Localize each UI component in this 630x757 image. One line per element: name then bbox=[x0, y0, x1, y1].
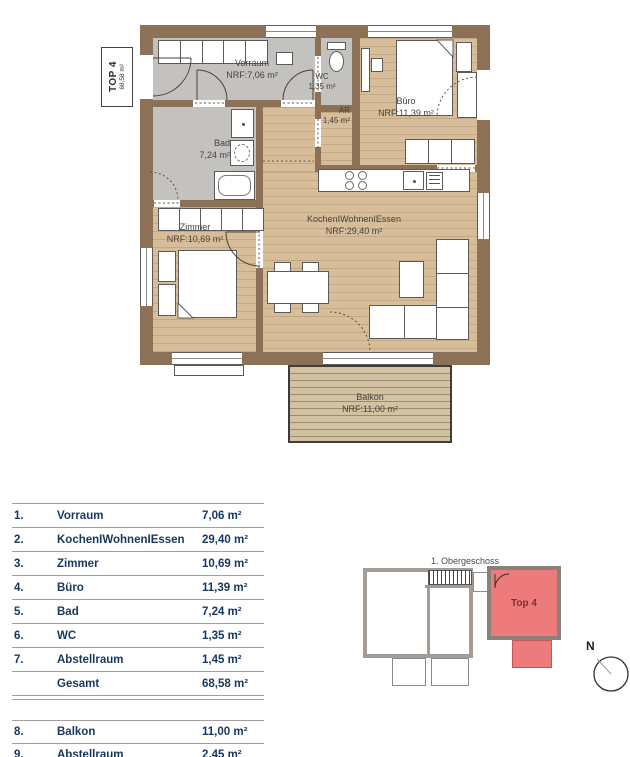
window-vorraum bbox=[266, 25, 316, 38]
overview-title: 1. Obergeschoss bbox=[385, 556, 545, 566]
row-label: Abstellraum bbox=[54, 749, 202, 757]
row-value: 11,39 m² bbox=[202, 582, 264, 594]
bed-zimmer bbox=[178, 250, 237, 318]
row-number: 2. bbox=[12, 534, 54, 546]
wall-bad-right bbox=[256, 100, 263, 207]
kitchen-sink-icon bbox=[403, 171, 424, 190]
window-zimmer-left bbox=[140, 248, 153, 306]
sofa-vertical bbox=[436, 239, 469, 340]
unit-top4-fill: Top 4 bbox=[491, 570, 557, 636]
toilet-icon bbox=[329, 51, 344, 72]
room-label-wc: WC1,35 m² bbox=[298, 72, 346, 93]
unit-name: TOP 4 bbox=[108, 61, 119, 92]
row-value: 11,00 m² bbox=[202, 726, 264, 738]
bad-zimmer-opening bbox=[154, 200, 180, 207]
row-number: 9. bbox=[12, 749, 54, 757]
row-label: Zimmer bbox=[54, 558, 202, 570]
dining-table bbox=[267, 271, 329, 304]
unit-top4-label: Top 4 bbox=[511, 598, 537, 609]
window-buero bbox=[368, 25, 452, 38]
buero-door-leaf bbox=[457, 72, 477, 118]
table-row: 2. KochenIWohnenIEssen 29,40 m² bbox=[12, 528, 264, 552]
ov-wall bbox=[427, 588, 430, 654]
desk bbox=[361, 48, 370, 92]
row-label: WC bbox=[54, 630, 202, 642]
drainer-icon bbox=[426, 172, 443, 190]
main-floorplan: TOP 4 68,58 m² bbox=[0, 0, 630, 470]
entrance-door-opening bbox=[140, 55, 153, 99]
table-row: 9. Abstellraum 2,45 m² bbox=[12, 744, 264, 757]
room-label-zimmer: ZimmerNRF:10,69 m² bbox=[156, 222, 234, 245]
row-number: 6. bbox=[12, 630, 54, 642]
table-row: 1. Vorraum 7,06 m² bbox=[12, 503, 264, 528]
row-label: Bad bbox=[54, 606, 202, 618]
window-sill bbox=[174, 365, 244, 376]
room-label-wohnen: KochenIWohnenIEssenNRF:29,40 m² bbox=[298, 214, 410, 237]
row-value: 1,35 m² bbox=[202, 630, 264, 642]
row-value: 7,24 m² bbox=[202, 606, 264, 618]
row-number: 3. bbox=[12, 558, 54, 570]
zimmer-door-opening bbox=[256, 230, 263, 268]
row-value: 1,45 m² bbox=[202, 654, 264, 666]
staircase bbox=[428, 570, 472, 585]
room-label-ar: AR1,45 m² bbox=[296, 106, 350, 127]
buero-french-door-opening bbox=[477, 70, 490, 120]
bad-door-opening bbox=[193, 100, 225, 107]
row-label: Büro bbox=[54, 582, 202, 594]
nightstand-buero bbox=[456, 42, 472, 72]
ov-balcony bbox=[392, 658, 426, 686]
row-number: 1. bbox=[12, 510, 54, 522]
table-row: 4. Büro 11,39 m² bbox=[12, 576, 264, 600]
bathtub bbox=[214, 171, 255, 200]
wardrobe-buero bbox=[405, 139, 475, 164]
row-value: 10,69 m² bbox=[202, 558, 264, 570]
table-row: 7. Abstellraum 1,45 m² bbox=[12, 648, 264, 672]
area-table: 1. Vorraum 7,06 m² 2. KochenIWohnenIEsse… bbox=[12, 503, 264, 757]
row-value: 68,58 m² bbox=[202, 678, 264, 690]
window-zimmer-bottom bbox=[172, 352, 242, 365]
balcony-sliding-door bbox=[323, 352, 433, 365]
row-number: 7. bbox=[12, 654, 54, 666]
row-value: 2,45 m² bbox=[202, 749, 264, 757]
balcony: BalkonNRF:11,00 m² bbox=[288, 365, 452, 443]
sofa-horizontal bbox=[369, 305, 437, 339]
room-label-buero: BüroNRF:11,39 m² bbox=[358, 96, 454, 119]
row-value: 29,40 m² bbox=[202, 534, 264, 546]
floorplan-sheet: TOP 4 68,58 m² bbox=[0, 0, 630, 757]
unit-label-box: TOP 4 68,58 m² bbox=[101, 47, 133, 107]
ov-wall bbox=[363, 568, 367, 658]
window-wohnen-right bbox=[477, 193, 490, 239]
table-row: 6. WC 1,35 m² bbox=[12, 624, 264, 648]
overview-plan: 1. Obergeschoss Top 4 bbox=[355, 548, 630, 728]
kitchen-counter bbox=[318, 169, 470, 192]
table-row: 8. Balkon 11,00 m² bbox=[12, 720, 264, 744]
row-label: Balkon bbox=[54, 726, 202, 738]
bed-headboard-2 bbox=[158, 284, 176, 316]
row-label: KochenIWohnenIEssen bbox=[54, 534, 202, 546]
unit-total-area: 68,58 m² bbox=[119, 64, 126, 90]
bed-headboard-1 bbox=[158, 251, 176, 282]
room-label-bad: Bad7,24 m² bbox=[166, 138, 230, 161]
coffee-table bbox=[399, 261, 424, 298]
table-gap bbox=[12, 700, 264, 720]
room-label-balkon: BalkonNRF:11,00 m² bbox=[342, 392, 398, 415]
row-value: 7,06 m² bbox=[202, 510, 264, 522]
desk-chair bbox=[371, 58, 383, 72]
table-row: 3. Zimmer 10,69 m² bbox=[12, 552, 264, 576]
washing-machine bbox=[230, 140, 254, 166]
row-number: 8. bbox=[12, 726, 54, 738]
row-label: Gesamt bbox=[54, 678, 202, 690]
ov-wall bbox=[425, 585, 472, 588]
row-label: Abstellraum bbox=[54, 654, 202, 666]
room-label-vorraum: VorraumNRF:7,06 m² bbox=[198, 58, 306, 81]
row-label: Vorraum bbox=[54, 510, 202, 522]
table-row-total: Gesamt 68,58 m² bbox=[12, 672, 264, 696]
bathroom-sink bbox=[231, 109, 254, 138]
row-number: 4. bbox=[12, 582, 54, 594]
cooktop-icon bbox=[345, 171, 371, 191]
toilet-tank bbox=[327, 42, 346, 50]
unit-top4-balcony bbox=[512, 640, 552, 668]
table-row: 5. Bad 7,24 m² bbox=[12, 600, 264, 624]
unit-top4-overview: Top 4 bbox=[487, 566, 561, 640]
ov-balcony bbox=[431, 658, 469, 686]
row-number: 5. bbox=[12, 606, 54, 618]
